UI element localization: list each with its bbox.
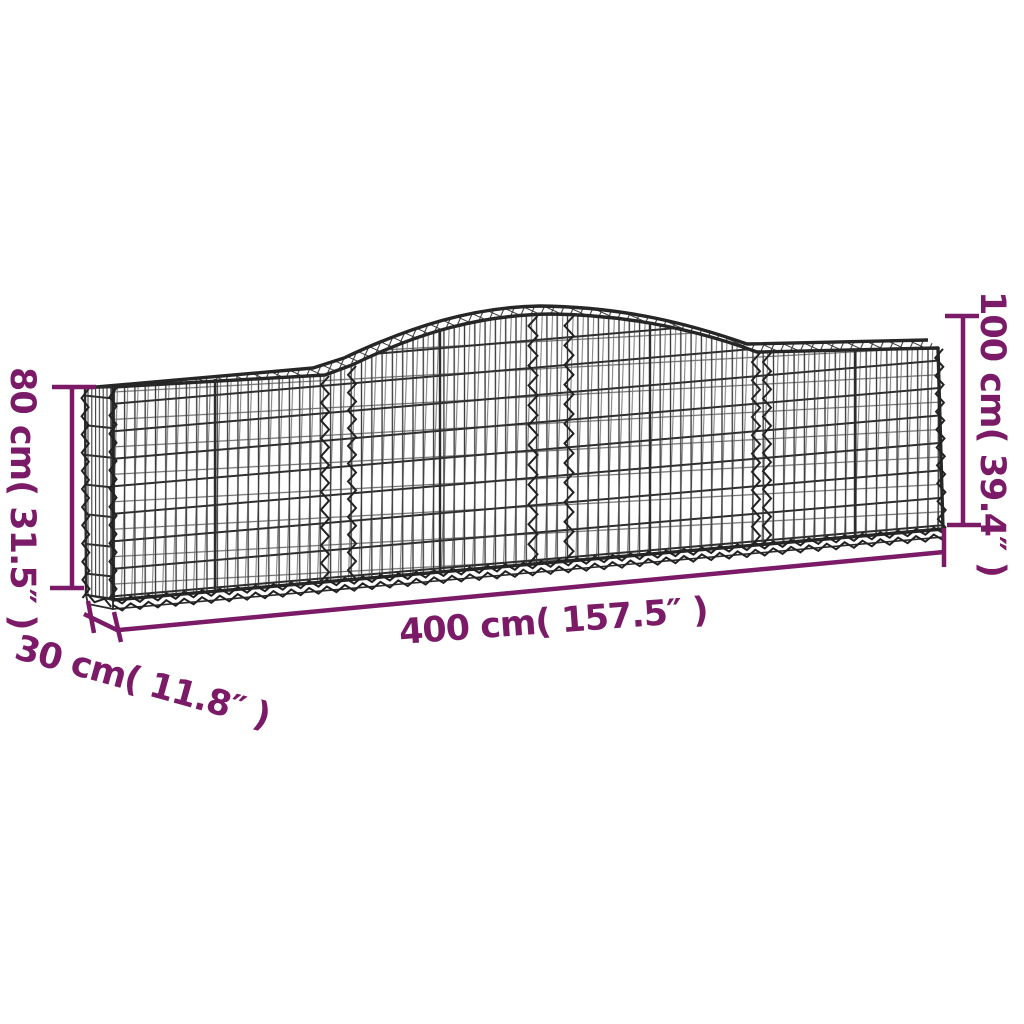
- gabion-diagram-canvas: 80 cm( 31.5″ ) 30 cm( 11.8″ ) 400 cm( 15…: [0, 0, 1024, 1024]
- height-left-label: 80 cm( 31.5″ ): [2, 367, 42, 629]
- height-left-dimension: 80 cm( 31.5″ ): [2, 367, 96, 629]
- height-right-dimension: 100 cm( 39.4″ ): [945, 291, 1012, 577]
- height-right-label: 100 cm( 39.4″ ): [972, 291, 1012, 577]
- depth-dimension: 30 cm( 11.8″ ): [11, 601, 275, 737]
- gabion-front-face: [113, 314, 943, 600]
- gabion-side-face: [85, 387, 113, 599]
- depth-label: 30 cm( 11.8″ ): [11, 628, 275, 737]
- product-dimension-diagram: 80 cm( 31.5″ ) 30 cm( 11.8″ ) 400 cm( 15…: [0, 0, 1024, 1024]
